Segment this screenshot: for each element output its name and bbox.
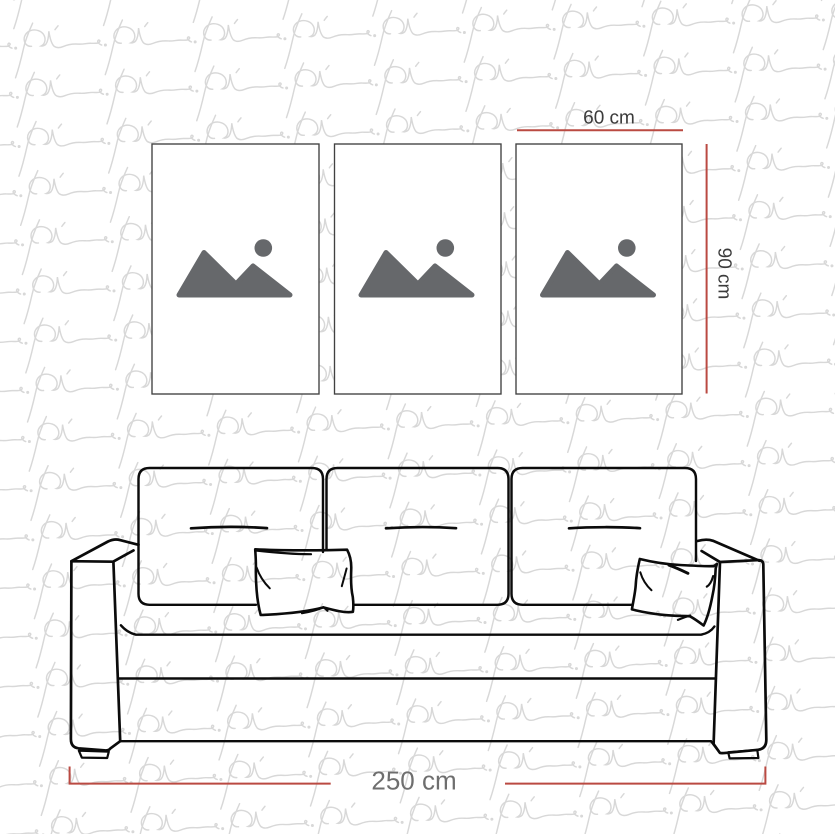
svg-text:250 cm: 250 cm [371,766,456,796]
svg-text:90 cm: 90 cm [714,248,735,300]
svg-text:60 cm: 60 cm [583,108,635,129]
